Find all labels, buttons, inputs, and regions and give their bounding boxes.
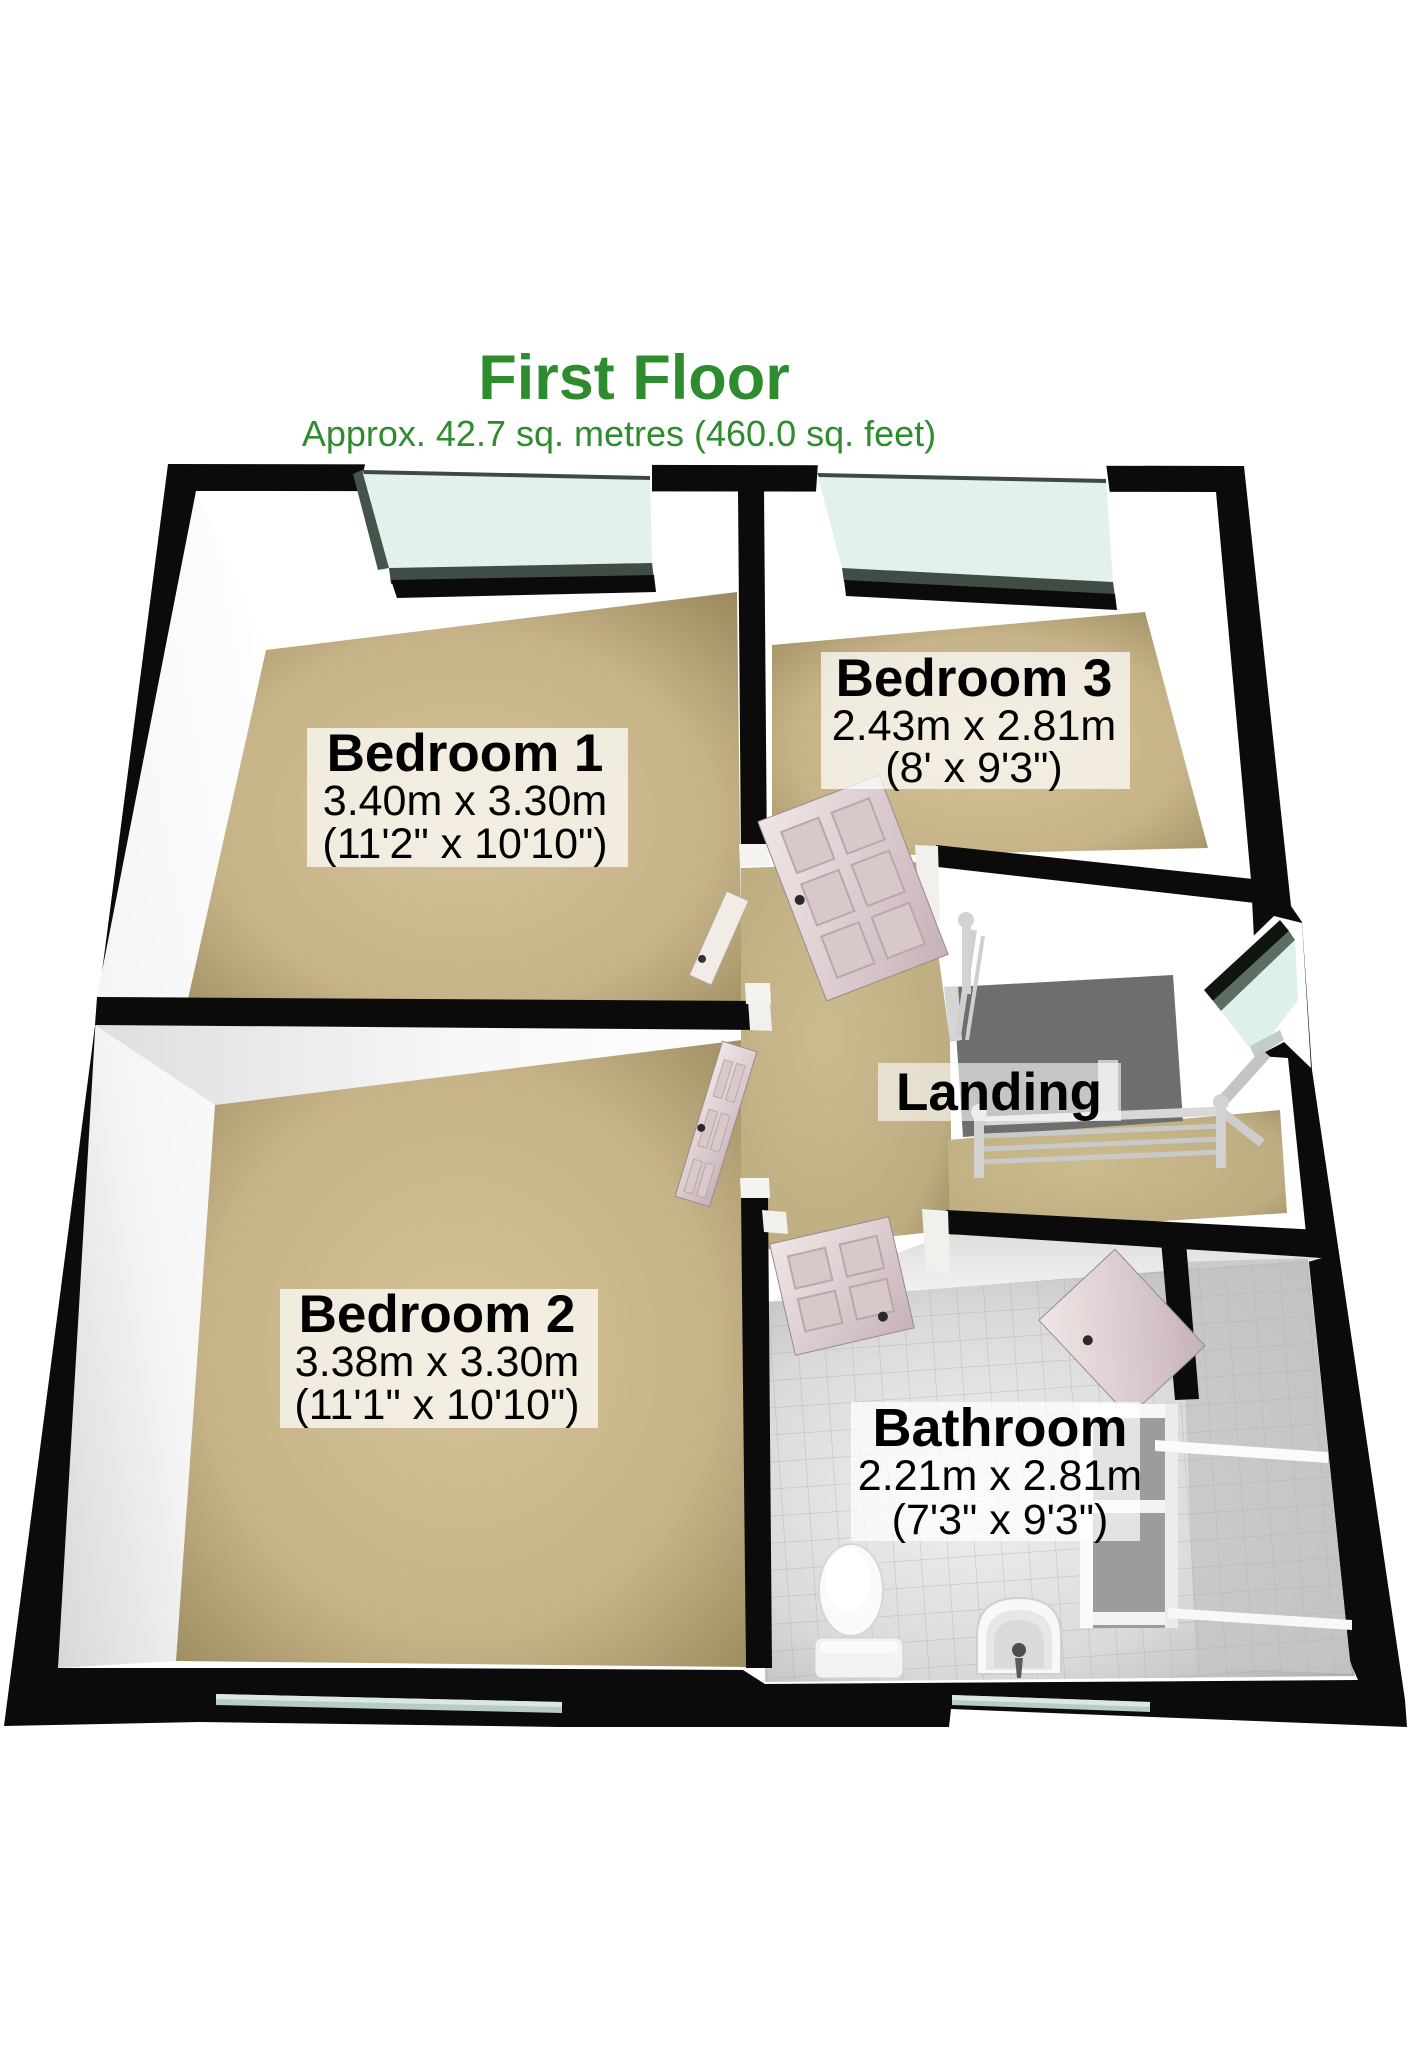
svg-text:Bathroom: Bathroom (873, 1398, 1128, 1458)
svg-text:Bedroom 1: Bedroom 1 (327, 724, 604, 783)
svg-text:2.43m x 2.81m: 2.43m x 2.81m (832, 702, 1116, 750)
svg-text:3.38m x 3.30m: 3.38m x 3.30m (295, 1338, 579, 1386)
svg-text:(8' x 9'3"): (8' x 9'3") (885, 744, 1062, 792)
svg-text:Landing: Landing (896, 1063, 1102, 1122)
svg-text:(11'1" x 10'10"): (11'1" x 10'10") (294, 1381, 579, 1429)
svg-text:3.40m x 3.30m: 3.40m x 3.30m (323, 777, 607, 825)
svg-text:Bedroom 3: Bedroom 3 (836, 649, 1113, 708)
svg-text:Bedroom 2: Bedroom 2 (299, 1285, 576, 1344)
svg-text:2.21m x 2.81m: 2.21m x 2.81m (858, 1452, 1142, 1500)
svg-text:First Floor: First Floor (478, 343, 790, 413)
svg-text:Approx. 42.7 sq. metres (460.0: Approx. 42.7 sq. metres (460.0 sq. feet) (302, 413, 936, 454)
svg-text:(7'3" x 9'3"): (7'3" x 9'3") (892, 1496, 1109, 1544)
svg-text:(11'2" x 10'10"): (11'2" x 10'10") (322, 820, 607, 868)
